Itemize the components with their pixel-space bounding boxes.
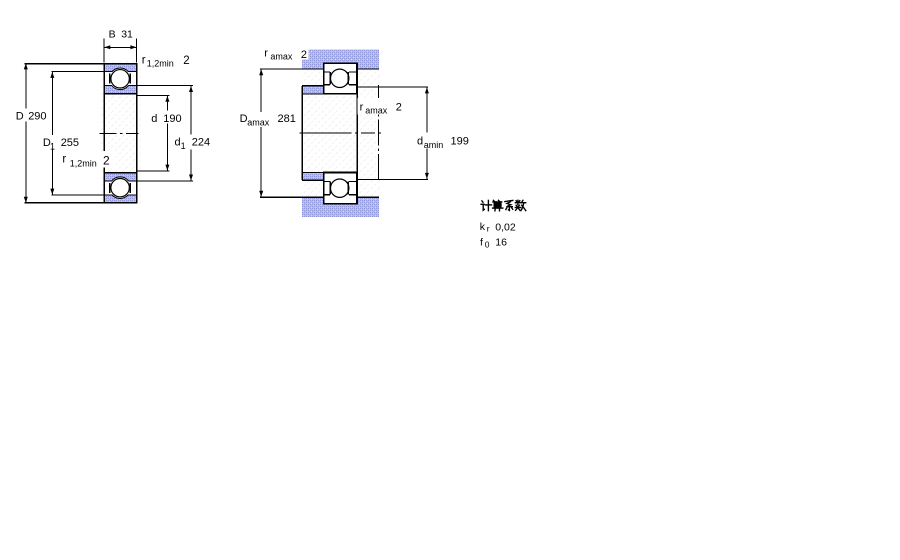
svg-text:amin: amin [424,140,444,150]
svg-text:190: 190 [163,113,181,125]
svg-text:1,2min: 1,2min [147,59,174,69]
svg-text:31: 31 [121,28,133,40]
svg-text:d: d [151,113,157,125]
svg-text:1: 1 [181,141,186,151]
svg-text:2: 2 [396,102,402,114]
svg-text:1: 1 [50,141,55,151]
svg-text:amax: amax [270,52,293,62]
svg-text:224: 224 [192,137,210,149]
svg-text:1,2min: 1,2min [70,159,97,169]
svg-text:0,02: 0,02 [495,221,516,233]
svg-text:amax: amax [247,117,270,127]
svg-text:r: r [264,47,268,59]
svg-text:2: 2 [301,49,307,61]
svg-text:r: r [142,54,146,66]
svg-text:255: 255 [61,137,79,149]
svg-text:B: B [109,28,116,40]
svg-text:r: r [360,102,364,114]
svg-text:16: 16 [495,237,507,249]
svg-text:281: 281 [278,113,296,125]
svg-text:199: 199 [451,135,469,147]
svg-text:r: r [487,224,490,234]
svg-text:k: k [480,221,486,233]
svg-text:0: 0 [485,240,490,250]
svg-text:2: 2 [103,153,110,167]
svg-text:f: f [480,237,483,249]
svg-text:D: D [16,110,24,122]
svg-text:d: d [417,135,423,147]
svg-text:2: 2 [183,55,189,67]
svg-text:r: r [62,154,66,166]
svg-text:290: 290 [28,110,46,122]
svg-text:amax: amax [365,106,388,116]
